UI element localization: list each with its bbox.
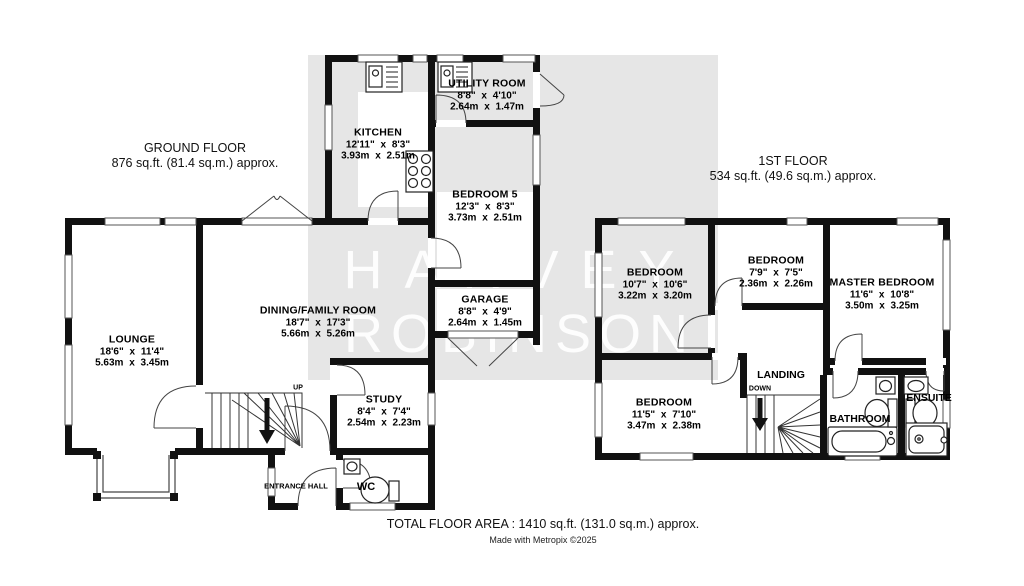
room-dim-metric: 2.64m x 1.45m <box>448 317 522 328</box>
room-label-bedroom-c: BEDROOM 11'5" x 7'10" 3.47m x 2.38m <box>627 397 701 431</box>
room-dim-imperial: 12'11" x 8'3" <box>341 139 415 150</box>
bath-icon <box>828 427 897 456</box>
room-dim-metric: 2.64m x 1.47m <box>448 101 525 112</box>
room-label-landing: LANDING <box>757 369 805 381</box>
stairs-up-label: UP <box>293 385 303 392</box>
room-dim-metric: 2.54m x 2.23m <box>347 417 421 428</box>
room-dim-imperial: 8'4" x 7'4" <box>347 406 421 417</box>
room-dim-metric: 3.73m x 2.51m <box>448 212 522 223</box>
room-label-study: STUDY 8'4" x 7'4" 2.54m x 2.23m <box>347 394 421 428</box>
room-label-master-bedroom: MASTER BEDROOM 11'6" x 10'8" 3.50m x 3.2… <box>830 277 935 311</box>
floor-plan: HARVEY ROBINSON <box>0 0 1024 586</box>
room-name: STUDY <box>347 394 421 406</box>
room-dim-imperial: 10'7" x 10'6" <box>618 279 692 290</box>
room-dim-imperial: 18'7" x 17'3" <box>260 317 376 328</box>
room-dim-imperial: 8'8" x 4'9" <box>448 306 522 317</box>
room-name: KITCHEN <box>341 127 415 139</box>
shower-icon <box>906 423 947 456</box>
room-name: DINING/FAMILY ROOM <box>260 305 376 317</box>
stairs-ground <box>205 393 302 448</box>
walls <box>65 55 950 510</box>
metropix-credit: Made with Metropix ©2025 <box>489 535 596 545</box>
room-label-kitchen: KITCHEN 12'11" x 8'3" 3.93m x 2.51m <box>341 127 415 161</box>
room-dim-metric: 3.93m x 2.51m <box>341 150 415 161</box>
room-label-garage: GARAGE 8'8" x 4'9" 2.64m x 1.45m <box>448 294 522 328</box>
room-name: BEDROOM <box>618 267 692 279</box>
bathroom-basin-icon <box>876 377 895 394</box>
first-floor-title-text: 1ST FLOOR <box>710 154 877 169</box>
room-name: LOUNGE <box>95 334 169 346</box>
wc-basin-icon <box>344 459 360 474</box>
room-dim-imperial: 12'3" x 8'3" <box>448 201 522 212</box>
ground-floor-title-text: GROUND FLOOR <box>112 141 279 156</box>
room-dim-metric: 5.66m x 5.26m <box>260 328 376 339</box>
room-label-wc: WC <box>357 481 375 493</box>
room-name: MASTER BEDROOM <box>830 277 935 289</box>
bay-window <box>93 451 178 501</box>
first-floor-title: 1ST FLOOR 534 sq.ft. (49.6 sq.m.) approx… <box>710 154 877 184</box>
room-dim-imperial: 11'5" x 7'10" <box>627 409 701 420</box>
room-name: BEDROOM <box>739 255 813 267</box>
room-label-bedroom-a: BEDROOM 10'7" x 10'6" 3.22m x 3.20m <box>618 267 692 301</box>
room-name: UTILITY ROOM <box>448 78 525 90</box>
room-label-bedroom-5: BEDROOM 5 12'3" x 8'3" 3.73m x 2.51m <box>448 189 522 223</box>
room-dim-metric: 3.50m x 3.25m <box>830 300 935 311</box>
room-label-bathroom: BATHROOM <box>829 413 890 425</box>
room-label-bedroom-b: BEDROOM 7'9" x 7'5" 2.36m x 2.26m <box>739 255 813 289</box>
room-label-dining-family: DINING/FAMILY ROOM 18'7" x 17'3" 5.66m x… <box>260 305 376 339</box>
stairs-first <box>747 395 820 453</box>
room-dim-imperial: 11'6" x 10'8" <box>830 289 935 300</box>
room-dim-metric: 3.47m x 2.38m <box>627 420 701 431</box>
room-dim-imperial: 18'6" x 11'4" <box>95 346 169 357</box>
room-dim-imperial: 7'9" x 7'5" <box>739 267 813 278</box>
room-dim-metric: 2.36m x 2.26m <box>739 278 813 289</box>
room-dim-metric: 5.63m x 3.45m <box>95 357 169 368</box>
room-dim-metric: 3.22m x 3.20m <box>618 290 692 301</box>
room-name: BEDROOM 5 <box>448 189 522 201</box>
room-label-ensuite: ENSUITE <box>906 392 952 404</box>
room-label-lounge: LOUNGE 18'6" x 11'4" 5.63m x 3.45m <box>95 334 169 368</box>
room-label-utility: UTILITY ROOM 8'8" x 4'10" 2.64m x 1.47m <box>448 78 525 112</box>
room-name: BEDROOM <box>627 397 701 409</box>
ground-floor-title: GROUND FLOOR 876 sq.ft. (81.4 sq.m.) app… <box>112 141 279 171</box>
room-label-entrance-hall: ENTRANCE HALL <box>264 482 328 491</box>
total-floor-area: TOTAL FLOOR AREA : 1410 sq.ft. (131.0 sq… <box>387 517 699 531</box>
room-name: GARAGE <box>448 294 522 306</box>
ground-floor-area-text: 876 sq.ft. (81.4 sq.m.) approx. <box>112 156 279 171</box>
stairs-down-label: DOWN <box>749 386 771 393</box>
kitchen-sink-icon <box>366 62 402 92</box>
room-dim-imperial: 8'8" x 4'10" <box>448 90 525 101</box>
first-floor-area-text: 534 sq.ft. (49.6 sq.m.) approx. <box>710 169 877 184</box>
